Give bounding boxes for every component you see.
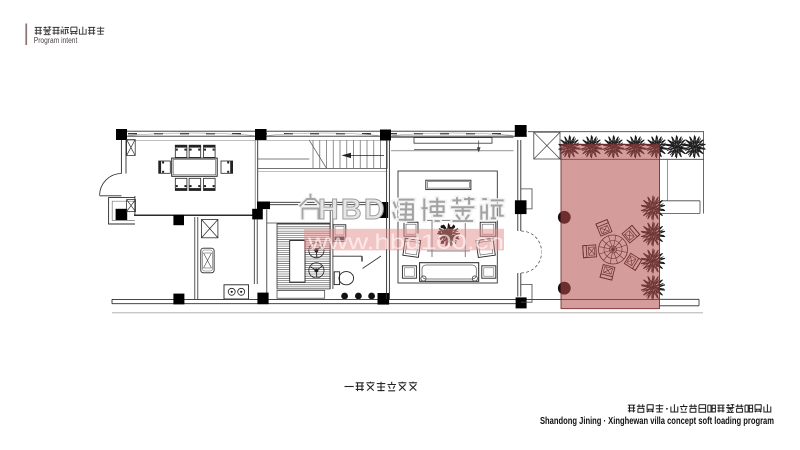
svg-text:HBD: HBD xyxy=(318,194,387,226)
svg-text:Shandong Jining · Xinghewan vi: Shandong Jining · Xinghewan villa concep… xyxy=(540,416,774,427)
svg-text:www.hbd100.cn: www.hbd100.cn xyxy=(307,230,504,254)
svg-text:Program intent: Program intent xyxy=(34,36,78,45)
